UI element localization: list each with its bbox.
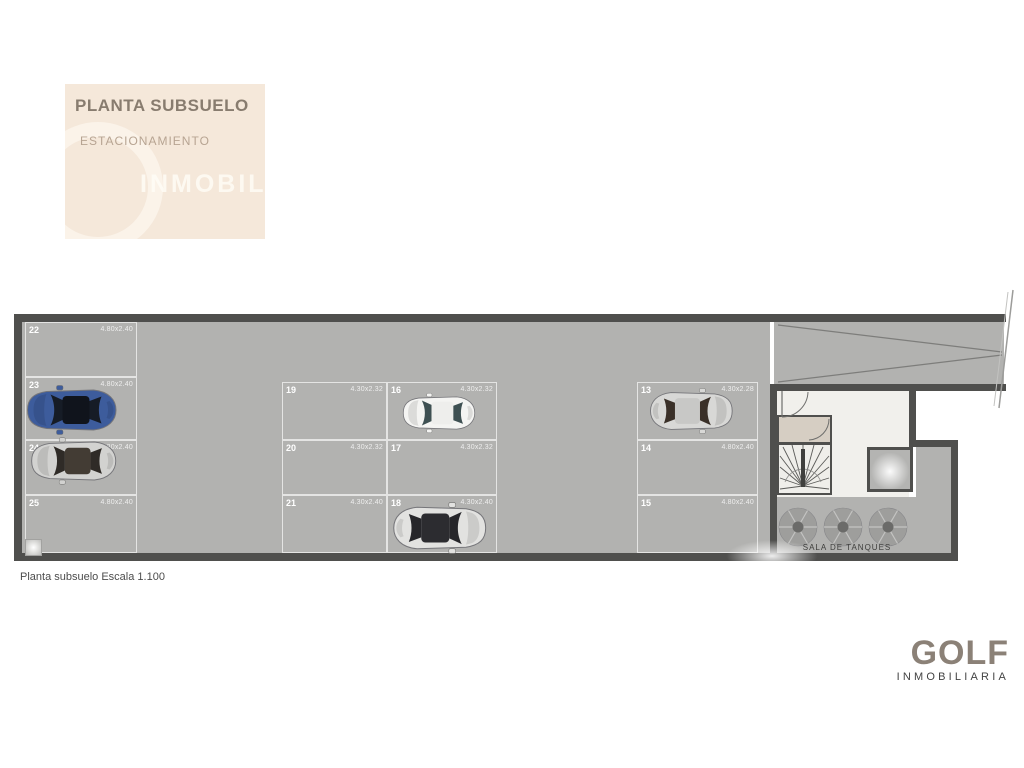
plan-title: PLANTA SUBSUELO (75, 96, 249, 116)
staircase-enclosure (777, 443, 832, 495)
car-top-view-space-16 (391, 392, 485, 434)
wall-right (951, 440, 958, 561)
space-dimension: 4.80x2.40 (100, 326, 133, 333)
lamp-symbol-icon (25, 539, 42, 556)
parking-space-22: 22 4.80x2.40 (25, 322, 137, 377)
space-number: 20 (286, 443, 296, 453)
space-dimension: 4.30x2.32 (350, 386, 383, 393)
tank-room-label: SALA DE TANQUES (792, 543, 902, 552)
floorplan-page: INMOBILIA PLANTA SUBSUELO ESTACIONAMIENT… (0, 0, 1024, 768)
car-top-view-space-13 (643, 387, 742, 435)
space-dimension: 4.80x2.40 (721, 444, 754, 451)
scale-caption: Planta subsuelo Escala 1.100 (20, 571, 165, 583)
car-top-view-space-24 (25, 434, 120, 488)
plan-header-card: INMOBILIA PLANTA SUBSUELO ESTACIONAMIENT… (65, 84, 265, 239)
space-dimension: 4.80x2.40 (100, 499, 133, 506)
wall-ramp-bottom (772, 384, 1006, 391)
parking-space-17: 17 4.30x2.32 (387, 440, 497, 495)
plan-subtitle: ESTACIONAMIENTO (80, 134, 210, 148)
wall-top (14, 314, 1006, 322)
wall-left (14, 314, 22, 561)
small-gray-room (867, 447, 913, 492)
ramp-floor (774, 322, 1004, 384)
watermark-text: INMOBILIA (140, 170, 265, 199)
wall-stair-room-right (909, 384, 916, 447)
wall-stair-room-left (770, 384, 777, 561)
parking-space-21: 21 4.30x2.40 (282, 495, 387, 553)
stair-landing-room (777, 415, 832, 444)
space-number: 14 (641, 443, 651, 453)
room-light-glow (870, 450, 910, 489)
space-dimension: 4.30x2.40 (350, 499, 383, 506)
car-top-view-space-18 (389, 501, 493, 555)
space-dimension: 4.30x2.32 (460, 444, 493, 451)
car-top-view-space-23 (20, 384, 121, 436)
space-number: 19 (286, 385, 296, 395)
space-dimension: 4.30x2.32 (350, 444, 383, 451)
brand-tagline: INMOBILIARIA (897, 671, 1009, 683)
space-number: 21 (286, 498, 296, 508)
parking-space-20: 20 4.30x2.32 (282, 440, 387, 495)
parking-space-19: 19 4.30x2.32 (282, 382, 387, 440)
space-number: 17 (391, 443, 401, 453)
brand-name: GOLF (897, 637, 1009, 669)
space-dimension: 4.80x2.40 (721, 499, 754, 506)
space-number: 25 (29, 498, 39, 508)
brand-logo: GOLF INMOBILIARIA (897, 637, 1009, 683)
space-number: 22 (29, 325, 39, 335)
parking-space-14: 14 4.80x2.40 (637, 440, 758, 495)
space-number: 15 (641, 498, 651, 508)
